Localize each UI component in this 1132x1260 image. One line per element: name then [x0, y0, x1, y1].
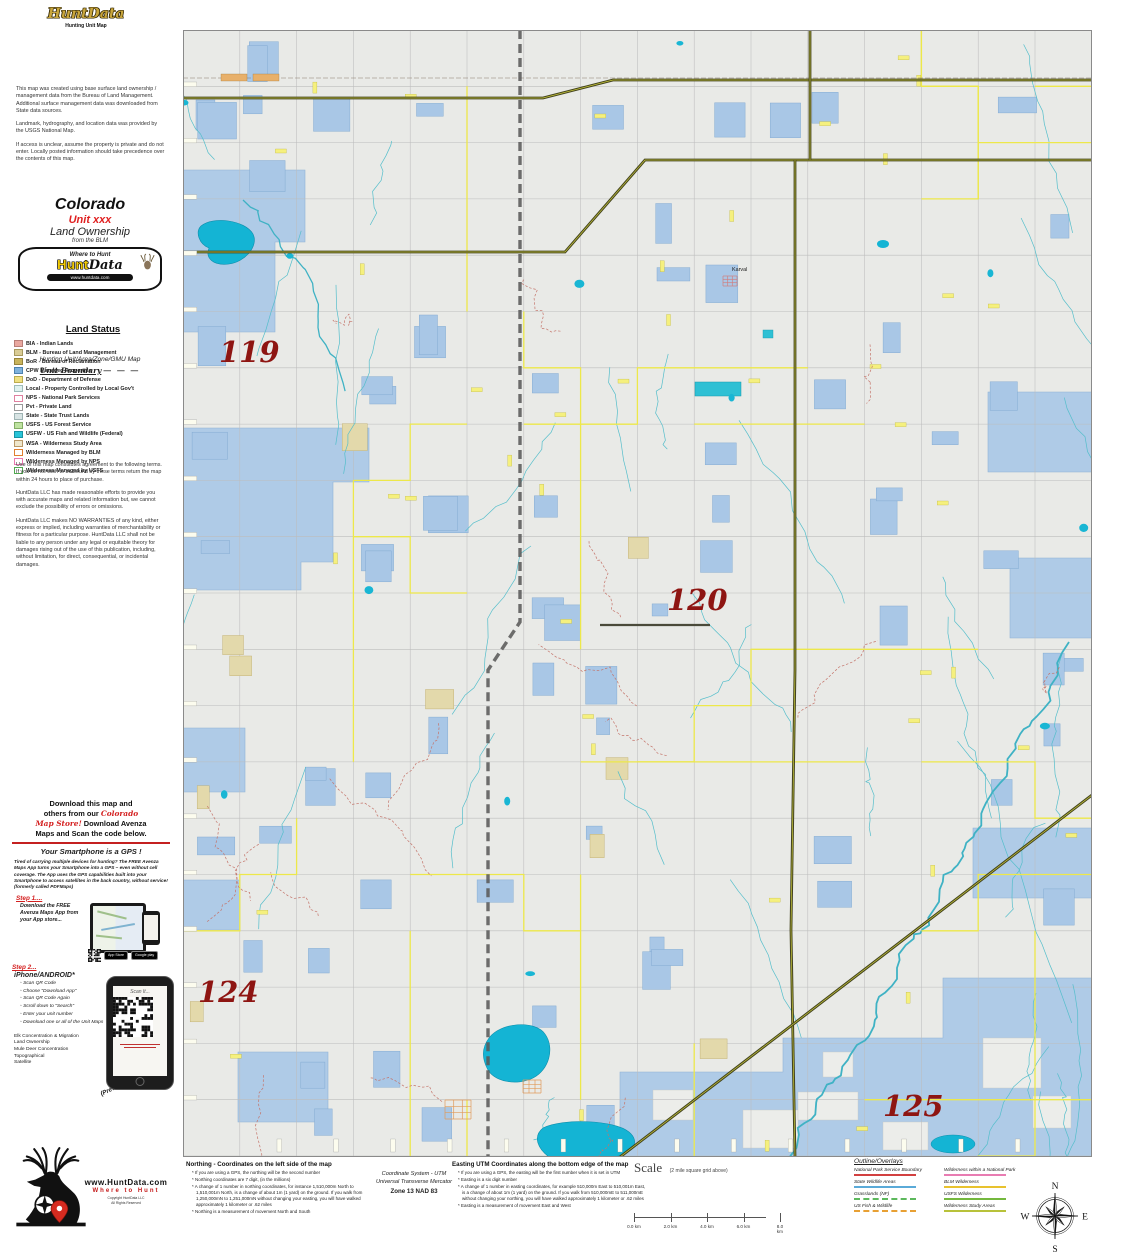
scan-it-label: Scan It... [113, 989, 167, 995]
unit-title: Unit xxx [8, 214, 172, 226]
overlays-title: Outline/Overlays [854, 1158, 1026, 1165]
gps-headline: Your Smartphone is a GPS ! [10, 847, 172, 856]
map-type-item: Mule Deer Concentration [14, 1047, 105, 1052]
brand-tagline: Hunting Unit Map [26, 23, 146, 29]
overlay-item: USFS Wilderness [944, 1192, 1024, 1200]
legend-swatch [14, 413, 23, 420]
land-status-item: NPS - National Park Services [14, 395, 172, 402]
legend-swatch [14, 376, 23, 383]
disclaimer-paragraph: If access is unclear, assume the propert… [16, 142, 166, 164]
map-subject: Land Ownership [8, 226, 172, 238]
promo-line: Download this map and [10, 799, 172, 809]
footer-copyright: Copyright HuntData LLC All Rights Reserv… [74, 1196, 178, 1206]
land-status-item: Wilderness Managed by BLM [14, 449, 172, 456]
app-step: Scan QR Code [20, 981, 105, 987]
overlay-item: Wilderness within a National Park [944, 1168, 1024, 1176]
easting-title: Easting UTM Coordinates along the bottom… [452, 1161, 648, 1168]
terms-paragraph: HuntData LLC makes NO WARRANTIES of any … [16, 518, 166, 569]
phone-caption-line [120, 1044, 160, 1046]
easting-note: Easting is a measurement of movement Eas… [458, 1203, 648, 1209]
promo-line: Map Store! Download Avenza [10, 819, 172, 829]
footer-url: www.HuntData.com [74, 1178, 178, 1187]
app-step: Scroll down to "Search" [20, 1004, 105, 1010]
overlay-item: State Wildlife Areas [854, 1180, 934, 1188]
terms-paragraph: HuntData LLC has made reasonable efforts… [16, 490, 166, 512]
legend-swatch [14, 431, 23, 438]
northing-help: Northing - Coordinates on the left side … [186, 1161, 372, 1216]
phone-icon [142, 911, 160, 945]
map-type-item: Elk Concentration & Migration [14, 1034, 105, 1039]
deer-icon [140, 253, 156, 271]
coord-system-line: Coordinate System - UTM [372, 1170, 456, 1178]
huntdata-banner-logo: Where to Hunt HuntData www.huntdata.com [18, 247, 162, 291]
overlay-line-sample [854, 1186, 916, 1188]
qr-code [113, 997, 153, 1037]
scale-bar-line [634, 1217, 766, 1218]
northing-note: If you are using a GPS, the northing wil… [192, 1170, 372, 1176]
app-step: Download one or all of the Unit Maps [20, 1020, 105, 1026]
devices-graphic: App Store Google play [82, 903, 162, 961]
phone-caption-line [124, 1047, 156, 1049]
legend-swatch [14, 349, 23, 356]
land-status-item: BLM - Bureau of Land Management [14, 349, 172, 356]
northing-note: A change of 1 number in northing coordin… [192, 1184, 372, 1208]
overlay-item: US Fish & Wildlife [854, 1204, 934, 1212]
land-status-item: DoD - Department of Defense [14, 376, 172, 383]
svg-text:S: S [1052, 1245, 1057, 1255]
scale-tick-label: 6.0 km [737, 1224, 751, 1229]
easting-note: Easting is a six digit number [458, 1177, 648, 1183]
step1-label: Step 1.... [16, 895, 172, 902]
legend-swatch [14, 385, 23, 392]
overlay-line-sample [854, 1198, 916, 1200]
overlay-item: Grasslands (NF) [854, 1192, 934, 1200]
map-canvas: Karval119120124125 [183, 30, 1092, 1157]
land-status-item: USFW - US Fish and Wildlife (Federal) [14, 431, 172, 438]
gps-description: Tired of carrying multiple devices for h… [14, 859, 168, 891]
northing-title: Northing - Coordinates on the left side … [186, 1161, 372, 1168]
land-status-item: USFS - US Forest Service [14, 422, 172, 429]
phone-with-qr: Scan It... [106, 976, 174, 1090]
overlay-line-sample [944, 1198, 1006, 1200]
promo-line: others from our Colorado [10, 809, 172, 819]
svg-text:E: E [1082, 1213, 1088, 1223]
overlay-line-sample [944, 1174, 1006, 1176]
overlay-line-sample [944, 1186, 1006, 1188]
scale-bar: 0.0 km 2.0 km 4.0 km 6.0 km 8.0 km [634, 1213, 780, 1231]
easting-help: Easting UTM Coordinates along the bottom… [452, 1161, 648, 1210]
store-name: Map Store! [36, 819, 82, 828]
unit-number-label: 120 [667, 583, 728, 617]
land-status-item: BIA - Indian Lands [14, 340, 172, 347]
overlays-left-column: National Park Service Boundary State Wil… [854, 1168, 934, 1216]
banner-brand: HuntData [20, 258, 160, 273]
home-button [136, 1077, 145, 1086]
overlay-line-sample [944, 1210, 1006, 1212]
easting-note: If you are using a GPS, the easting will… [458, 1170, 648, 1176]
promo-line: Maps and Scan the code below. [10, 829, 172, 839]
store-name: Colorado [101, 809, 138, 818]
town-label: Karval [732, 267, 747, 273]
terms-paragraph: Use of this map constitutes agreement to… [16, 462, 166, 484]
step1-row: Download the FREE Avenza Maps App from y… [10, 903, 172, 961]
legend-swatch [14, 340, 23, 347]
unit-number-label: 124 [198, 975, 259, 1009]
step1-text: Download the FREE Avenza Maps App from y… [20, 903, 82, 961]
land-status-item: CPW Managed Properties [14, 367, 172, 374]
svg-text:N: N [1052, 1182, 1059, 1192]
northing-note: Northing is a measurement of movement No… [192, 1209, 372, 1215]
coord-zone: Zone 13 NAD 83 [372, 1187, 456, 1196]
map-source-disclaimer: This map was created using base surface … [16, 86, 166, 170]
scale-tick-label: 0.0 km [627, 1224, 641, 1229]
step2-label: Step 2... [12, 964, 178, 971]
legend-swatch [14, 449, 23, 456]
legend-swatch [14, 440, 23, 447]
overlay-line-sample [854, 1210, 916, 1212]
scale-tick-label: 2.0 km [664, 1224, 678, 1229]
land-status-item: State - State Trust Lands [14, 413, 172, 420]
overlay-item: BLM Wilderness [944, 1180, 1024, 1188]
disclaimer-paragraph: This map was created using base surface … [16, 86, 166, 115]
northing-note: Northing coordinates are 7 digit, (in th… [192, 1177, 372, 1183]
coord-system-line: Universal Transverse Mercator [372, 1178, 456, 1186]
scale-box: Scale (2 mile square grid above) 0.0 km … [634, 1159, 780, 1231]
legend-swatch [14, 367, 23, 374]
data-source: from the BLM [8, 238, 172, 244]
footer-tagline: Where to Hunt [74, 1188, 178, 1194]
easting-note: A change of 1 number in easting coordina… [458, 1184, 648, 1202]
map-type-item: Satellite [14, 1060, 105, 1065]
land-status-item: BoR - Bureau of Reclamation [14, 358, 172, 365]
app-step: Enter your unit number [20, 1012, 105, 1018]
tablet-icon [90, 903, 146, 953]
svg-text:W: W [1021, 1213, 1030, 1223]
land-status-title: Land Status [14, 324, 172, 335]
scale-note: (2 mile square grid above) [670, 1168, 728, 1174]
scale-tick-label: 8.0 km [777, 1224, 783, 1234]
scale-label: Scale [634, 1160, 662, 1175]
overlays-legend: Outline/Overlays National Park Service B… [854, 1158, 1026, 1216]
google-play-badge: Google play [131, 951, 158, 960]
land-status-item: WSA - Wilderness Study Area [14, 440, 172, 447]
app-store-badge: App Store [104, 951, 128, 960]
land-status-items: BIA - Indian Lands BLM - Bureau of Land … [14, 340, 172, 474]
state-title: Colorado [8, 196, 172, 214]
unit-number-label: 119 [219, 335, 280, 369]
scale-tick-label: 4.0 km [700, 1224, 714, 1229]
unit-number-label: 125 [883, 1089, 944, 1123]
red-divider [12, 842, 170, 844]
land-status-legend: Land Status BIA - Indian Lands BLM - Bur… [14, 324, 172, 476]
brand-name: HuntData [26, 6, 146, 22]
overlays-right-column: Wilderness within a National Park BLM Wi… [944, 1168, 1024, 1216]
legend-swatch [14, 422, 23, 429]
step2-section: Step 2... iPhone/ANDROID* Scan QR CodeCh… [10, 960, 178, 1160]
disclaimer-paragraph: Landmark, hydrography, and location data… [16, 121, 166, 136]
map-type-item: Land Ownership [14, 1040, 105, 1045]
map-type-item: Topographical [14, 1054, 105, 1059]
footer-texts: www.HuntData.com Where to Hunt Copyright… [74, 1178, 178, 1206]
legend-swatch [14, 358, 23, 365]
legend-swatch [14, 395, 23, 402]
overlay-item: Wilderness Study Areas [944, 1204, 1024, 1212]
overlay-line-sample [854, 1174, 916, 1176]
phone-screen: Scan It... [113, 986, 167, 1076]
compass-rose: NSWE [1016, 1181, 1094, 1255]
app-steps-list: Scan QR CodeChoose "Download App"Scan QR… [10, 981, 105, 1026]
huntdata-logo: HuntData Hunting Unit Map [26, 6, 146, 29]
banner-url: www.huntdata.com [47, 274, 133, 281]
app-step: Scan QR Code Again [20, 996, 105, 1002]
app-step: Choose "Download App" [20, 989, 105, 995]
land-status-item: Pvt - Private Land [14, 404, 172, 411]
legend-swatch [14, 404, 23, 411]
map-types-list: Elk Concentration & MigrationLand Owners… [10, 1034, 105, 1065]
terms-of-use: Use of this map constitutes agreement to… [16, 462, 166, 575]
land-status-item: Local - Property Controlled by Local Gov… [14, 385, 172, 392]
coordinate-system: Coordinate System - UTM Universal Transv… [372, 1170, 456, 1196]
overlay-item: National Park Service Boundary [854, 1168, 934, 1176]
footer-logo: www.HuntData.com Where to Hunt Copyright… [12, 1146, 180, 1256]
download-promo: Download this map and others from our Co… [10, 799, 172, 961]
